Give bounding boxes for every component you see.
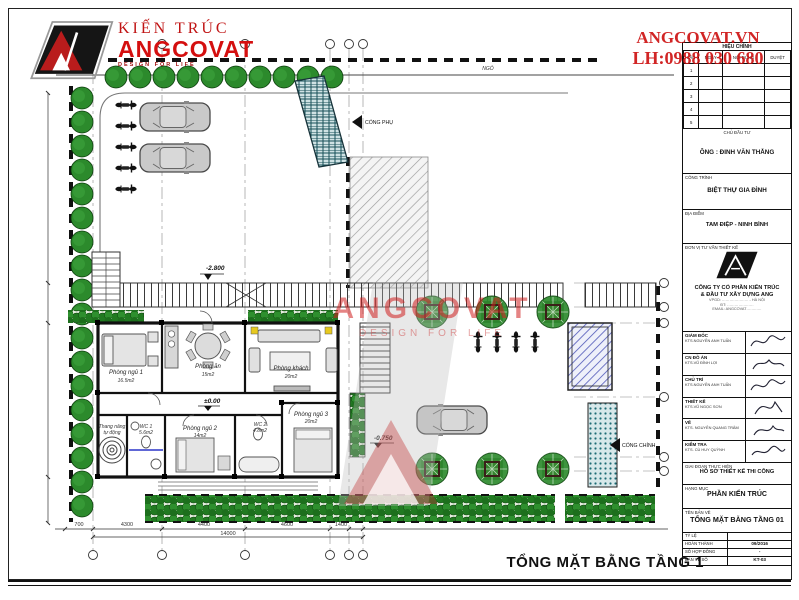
signature-icon xyxy=(749,356,787,372)
signature-icon xyxy=(749,334,787,350)
stage-value: HỒ SƠ THIẾT KẾ THI CÔNG xyxy=(683,469,791,475)
project-section: CÔNG TRÌNH BIỆT THỰ GIA ĐÌNH xyxy=(683,174,791,210)
logo-name: ANGCOVAT xyxy=(118,38,254,61)
signature-row: VẼKTS. NGUYỄN QUANG TRÂM xyxy=(683,419,791,441)
location-label: ĐỊA ĐIỂM xyxy=(683,210,791,216)
revision-row: 5 xyxy=(684,116,791,129)
car-icon xyxy=(140,101,210,133)
signature-section: GIÁM ĐỐCKTS.NGUYỄN ANH TUẤN CN ĐỒ ÁNKTS.… xyxy=(683,332,791,463)
category-value: PHẦN KIẾN TRÚC xyxy=(683,491,791,498)
meta-row: HOÀN THÀNH09/2016 xyxy=(683,541,791,549)
revision-row: 3 xyxy=(684,90,791,103)
svg-text:CỔNG CHÍNH: CỔNG CHÍNH xyxy=(622,442,656,449)
svg-text:20m2: 20m2 xyxy=(284,374,298,380)
title-block: HIỆU CHỈNH LẦN NGÀY NỘI DUNG DUYỆT 1 2 3… xyxy=(682,42,792,566)
project-value: BIỆT THỰ GIA ĐÌNH xyxy=(683,187,791,194)
company-logo-small-icon xyxy=(715,250,759,280)
sheet-name-value: TỔNG MẶT BẰNG TẦNG 01 xyxy=(683,515,791,524)
signature-icon xyxy=(749,422,787,438)
stage-section: GIAI ĐOẠN THỰC HIỆN HỒ SƠ THIẾT KẾ THI C… xyxy=(683,463,791,485)
meta-row: TỶ LỆ xyxy=(683,533,791,541)
level-upper-yard: -2.800 xyxy=(200,265,225,280)
svg-text:4400: 4400 xyxy=(198,522,210,528)
location-section: ĐỊA ĐIỂM TAM ĐIỆP - NINH BÌNH xyxy=(683,210,791,244)
signature-row: GIÁM ĐỐCKTS.NGUYỄN ANH TUẤN xyxy=(683,332,791,354)
project-label: CÔNG TRÌNH xyxy=(683,174,791,180)
svg-text:15m2: 15m2 xyxy=(202,372,215,378)
site-plan-drawing: NGỎ xyxy=(8,36,680,570)
drawing-sheet: NGỎ xyxy=(0,0,799,600)
hedge-strip xyxy=(68,310,144,323)
signature-row: CN ĐỒ ÁNKTS.VŨ ĐÌNH LỢI xyxy=(683,354,791,376)
investor-label: CHỦ ĐẦU TƯ xyxy=(683,129,791,135)
signature-icon xyxy=(749,378,787,394)
svg-text:Phòng ngủ 1: Phòng ngủ 1 xyxy=(109,369,143,376)
company-logo: KIẾN TRÚC ANGCOVAT DESIGN FOR LIFE xyxy=(26,20,254,82)
pond xyxy=(568,323,612,390)
signature-icon xyxy=(749,444,787,460)
road-label: NGỎ xyxy=(482,65,494,72)
svg-text:4.8m2: 4.8m2 xyxy=(253,428,267,434)
website-text: ANGCOVAT.VN xyxy=(603,28,793,48)
svg-text:14m2: 14m2 xyxy=(194,433,207,439)
svg-text:Phòng ngủ 3: Phòng ngủ 3 xyxy=(294,411,329,418)
investor-section: CHỦ ĐẦU TƯ ÔNG : ĐINH VĂN THẮNG xyxy=(683,129,791,175)
svg-text:20m2: 20m2 xyxy=(304,419,318,425)
logo-tagline: DESIGN FOR LIFE xyxy=(118,62,254,68)
staircase xyxy=(92,252,120,307)
svg-text:DESIGN FOR LIFE: DESIGN FOR LIFE xyxy=(359,328,505,339)
hatched-area xyxy=(350,157,428,288)
bottom-rule xyxy=(8,585,791,586)
svg-text:1400: 1400 xyxy=(335,522,347,528)
revision-row: 4 xyxy=(684,103,791,116)
logo-mark-icon xyxy=(26,20,114,82)
drawing-title: TỔNG MẶT BẰNG TẦNG 1 xyxy=(420,554,704,571)
contact-overlay: ANGCOVAT.VN LH:0988 030 680 xyxy=(603,28,793,69)
company-name-1: CÔNG TY CỔ PHẦN KIẾN TRÚC xyxy=(683,285,791,291)
investor-value: ÔNG : ĐINH VĂN THẮNG xyxy=(683,149,791,156)
svg-text:4300: 4300 xyxy=(121,522,133,528)
svg-text:Phòng ngủ 2: Phòng ngủ 2 xyxy=(183,425,218,432)
consultant-section: ĐƠN VỊ TƯ VẤN THIẾT KẾ CÔNG TY CỔ PHẦN K… xyxy=(683,244,791,332)
svg-text:tự động: tự động xyxy=(103,430,120,436)
svg-text:Phòng khách: Phòng khách xyxy=(273,366,309,372)
sheet-name-section: TÊN BẢN VẼ TỔNG MẶT BẰNG TẦNG 01 xyxy=(683,509,791,533)
location-value: TAM ĐIỆP - NINH BÌNH xyxy=(683,222,791,228)
revision-row: 2 xyxy=(684,77,791,90)
svg-text:±0.00: ±0.00 xyxy=(204,398,221,405)
category-section: HẠNG MỤC PHẦN KIẾN TRÚC xyxy=(683,485,791,509)
signature-row: THIẾT KẾKTS.VŨ NGỌC SƠN xyxy=(683,398,791,420)
bottom-rule xyxy=(8,580,791,582)
motorbike-row-left xyxy=(115,101,136,194)
svg-text:700: 700 xyxy=(74,522,83,528)
svg-text:5.6m2: 5.6m2 xyxy=(139,430,153,436)
signature-row: KIỂM TRAKTS. CÙ HUY QUỲNH xyxy=(683,441,791,463)
signature-icon xyxy=(749,400,787,416)
svg-text:CỔNG PHỤ: CỔNG PHỤ xyxy=(365,119,393,126)
signature-row: CHỦ TRÌKTS.NGUYỄN ANH TUẤN xyxy=(683,376,791,398)
car-icon xyxy=(140,142,210,174)
side-gate: CỔNG PHỤ xyxy=(352,115,393,129)
svg-text:4600: 4600 xyxy=(281,522,293,528)
hedge-strip xyxy=(248,310,338,323)
svg-text:14000: 14000 xyxy=(220,531,235,537)
side-ramp xyxy=(295,76,348,167)
svg-text:16.5m2: 16.5m2 xyxy=(118,378,135,384)
svg-text:Phòng ăn: Phòng ăn xyxy=(195,364,221,370)
svg-text:ANGCOVAT: ANGCOVAT xyxy=(332,292,531,325)
phone-text: LH:0988 030 680 xyxy=(603,48,793,69)
company-contact-3: EMAIL: ANGCOVAT………… xyxy=(683,307,791,312)
svg-text:-2.800: -2.800 xyxy=(206,265,225,272)
